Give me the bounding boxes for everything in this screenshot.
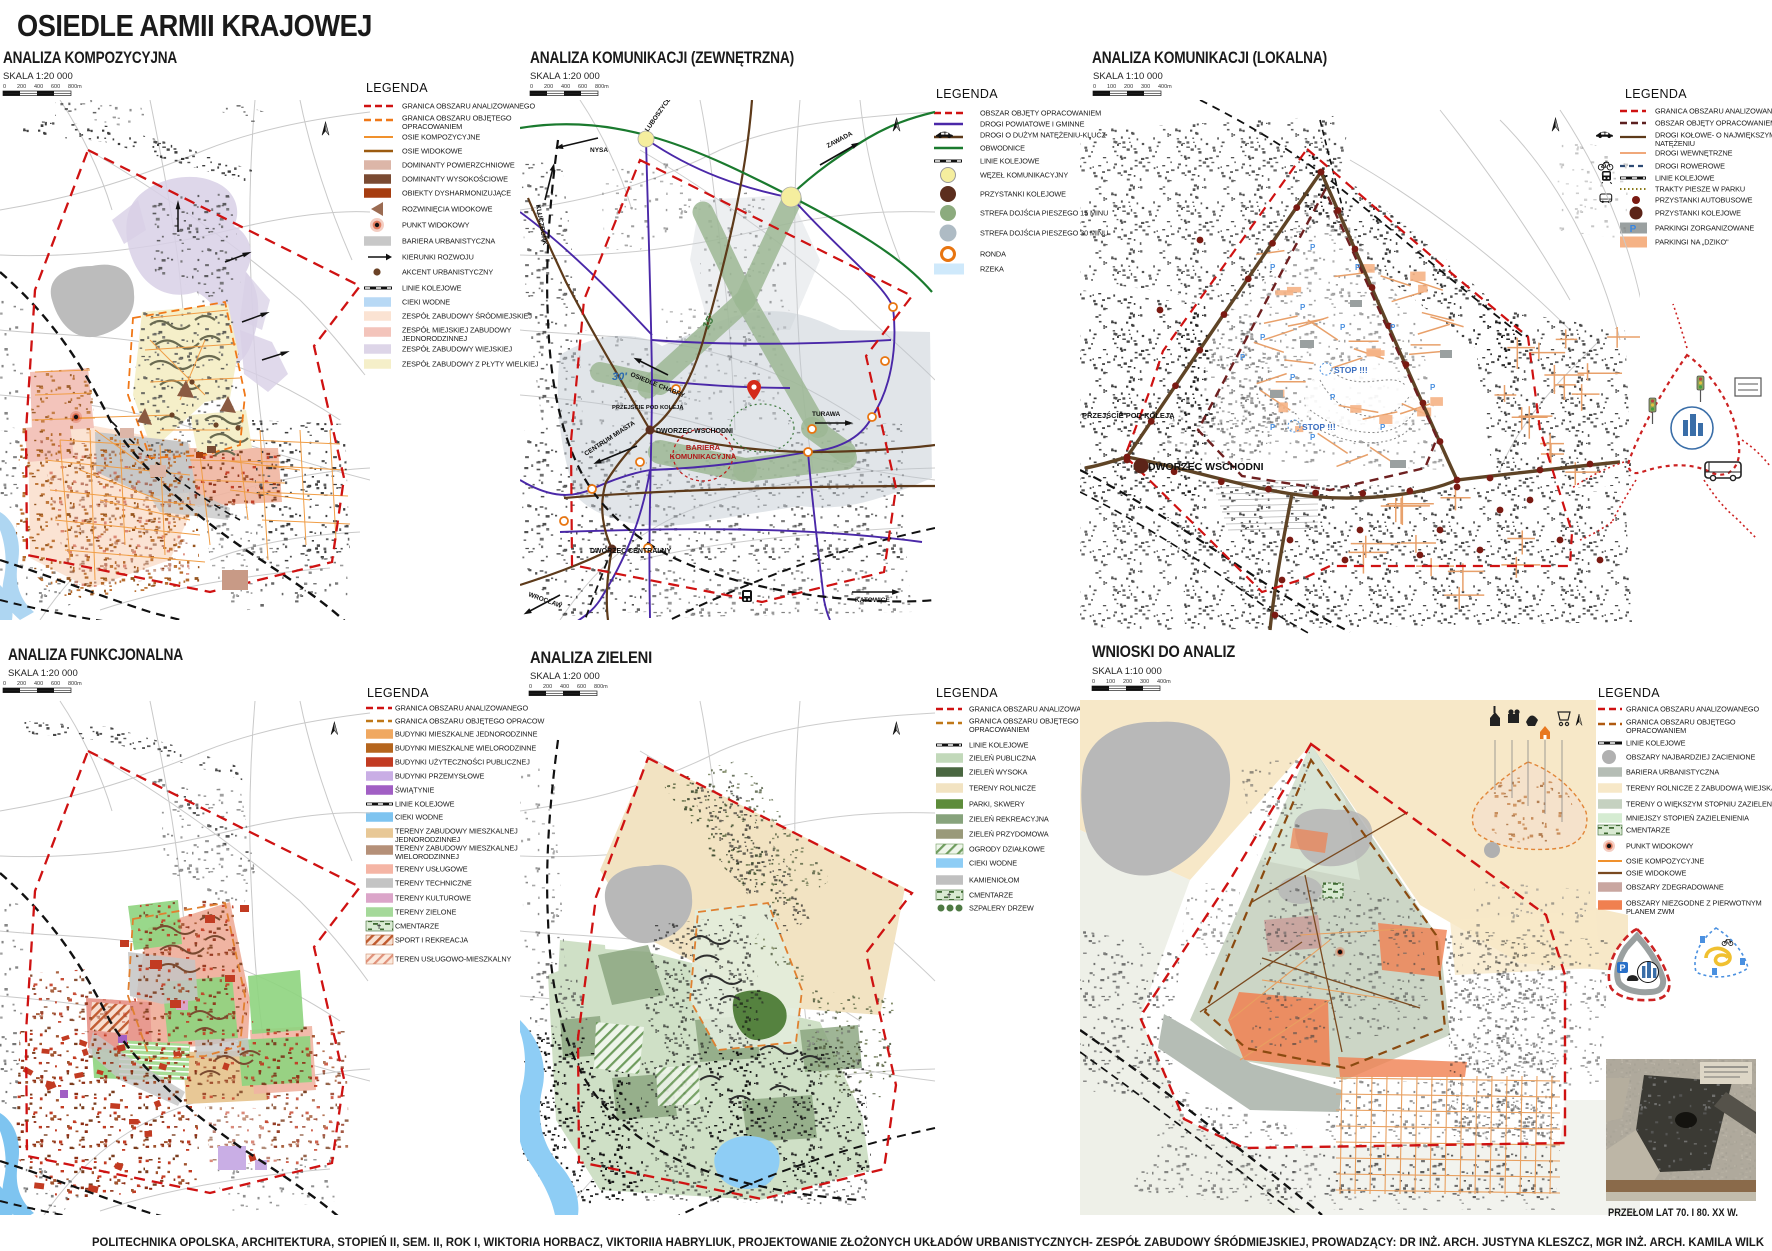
svg-text:P: P: [1310, 433, 1316, 442]
svg-text:TERENY ROLNICZE: TERENY ROLNICZE: [969, 784, 1036, 793]
svg-text:OBSZAR OBJĘTY OPRACOWANIEM: OBSZAR OBJĘTY OPRACOWANIEM: [980, 109, 1101, 118]
svg-text:OBSZARY NAJBARDZIEJ ZACIENIONE: OBSZARY NAJBARDZIEJ ZACIENIONE: [1626, 753, 1756, 762]
svg-text:BARIERA: BARIERA: [686, 443, 721, 452]
svg-text:300: 300: [1141, 84, 1150, 90]
svg-text:GRANICA OBSZARU OBJĘTEGO OPRAC: GRANICA OBSZARU OBJĘTEGO OPRACOW: [395, 717, 544, 726]
svg-text:CIEKI WODNE: CIEKI WODNE: [402, 298, 450, 307]
svg-text:OPRACOWANIEM: OPRACOWANIEM: [1626, 726, 1686, 735]
svg-text:PLANEM ZWM: PLANEM ZWM: [1626, 907, 1674, 916]
svg-text:OSIE KOMPOZYCYJNE: OSIE KOMPOZYCYJNE: [402, 133, 480, 142]
svg-text:0: 0: [3, 84, 6, 90]
svg-text:STOP !!!: STOP !!!: [1334, 365, 1368, 375]
svg-text:ANALIZA ZIELENI: ANALIZA ZIELENI: [530, 649, 652, 667]
svg-text:PARKI, SKWERY: PARKI, SKWERY: [969, 800, 1025, 809]
svg-text:400: 400: [34, 84, 43, 90]
svg-text:PRZEJŚCIE POD KOLEJĄ: PRZEJŚCIE POD KOLEJĄ: [1082, 411, 1175, 420]
svg-text:LEGENDA: LEGENDA: [936, 87, 998, 101]
svg-text:LINIE KOLEJOWE: LINIE KOLEJOWE: [1655, 174, 1715, 183]
svg-text:P: P: [1430, 383, 1436, 392]
svg-text:0: 0: [529, 684, 532, 690]
svg-text:OGRODY DZIAŁKOWE: OGRODY DZIAŁKOWE: [969, 845, 1045, 854]
svg-text:TRAKTY PIESZE W PARKU: TRAKTY PIESZE W PARKU: [1655, 185, 1745, 194]
svg-text:BUDYNKI MIESZKALNE WIELORODZIN: BUDYNKI MIESZKALNE WIELORODZINNE: [395, 744, 536, 753]
svg-text:✝: ✝: [946, 892, 952, 900]
svg-text:PARKINGI ZORGANIZOWANE: PARKINGI ZORGANIZOWANE: [1655, 224, 1754, 233]
svg-text:600: 600: [578, 84, 587, 90]
svg-text:200: 200: [1124, 84, 1133, 90]
svg-text:TERENY ROLNICZE Z ZABUDOWĄ WIE: TERENY ROLNICZE Z ZABUDOWĄ WIEJSKĄ: [1626, 784, 1772, 793]
svg-text:800m: 800m: [68, 681, 82, 687]
svg-text:ZESPÓŁ ZABUDOWY WIEJSKIEJ: ZESPÓŁ ZABUDOWY WIEJSKIEJ: [402, 345, 513, 354]
svg-text:ZIELEŃ PUBLICZNA: ZIELEŃ PUBLICZNA: [969, 754, 1036, 763]
svg-text:OSIE KOMPOZYCYJNE: OSIE KOMPOZYCYJNE: [1626, 857, 1704, 866]
svg-text:600: 600: [51, 681, 60, 687]
svg-text:DWORZEC WSCHODNI: DWORZEC WSCHODNI: [1148, 461, 1264, 473]
svg-text:400: 400: [561, 84, 570, 90]
svg-text:P: P: [1390, 323, 1396, 332]
svg-text:KOMUNIKACYJNA: KOMUNIKACYJNA: [670, 452, 737, 461]
svg-text:NATĘŻENIU: NATĘŻENIU: [1655, 139, 1695, 148]
svg-text:200: 200: [543, 684, 552, 690]
svg-text:100: 100: [1106, 679, 1115, 685]
svg-text:RONDA: RONDA: [980, 250, 1006, 259]
svg-text:PUNKT WIDOKOWY: PUNKT WIDOKOWY: [1626, 842, 1694, 851]
svg-text:P: P: [1300, 303, 1306, 312]
svg-text:400: 400: [560, 684, 569, 690]
svg-text:800m: 800m: [68, 84, 82, 90]
svg-text:BUDYNKI PRZEMYSŁOWE: BUDYNKI PRZEMYSŁOWE: [395, 772, 485, 781]
svg-text:LINIE KOLEJOWE: LINIE KOLEJOWE: [1626, 739, 1686, 748]
svg-text:P: P: [1290, 373, 1296, 382]
svg-text:0: 0: [1092, 679, 1095, 685]
svg-text:ZIELEŃ WYSOKA: ZIELEŃ WYSOKA: [969, 768, 1028, 777]
svg-text:P: P: [1630, 224, 1637, 235]
svg-text:PRZEŁOM LAT 70. I 80. XX W.: PRZEŁOM LAT 70. I 80. XX W.: [1608, 1207, 1738, 1219]
svg-text:TEREN USŁUGOWO-MIESZKALNY: TEREN USŁUGOWO-MIESZKALNY: [395, 955, 512, 964]
svg-text:ZESPÓŁ ZABUDOWY ŚRÓDMIEJSKIEJ: ZESPÓŁ ZABUDOWY ŚRÓDMIEJSKIEJ: [402, 312, 532, 321]
svg-text:PRZYSTANKI KOLEJOWE: PRZYSTANKI KOLEJOWE: [1655, 209, 1741, 218]
svg-text:OSIE WIDOKOWE: OSIE WIDOKOWE: [402, 147, 463, 156]
svg-text:SKALA 1:10 000: SKALA 1:10 000: [1092, 666, 1162, 677]
svg-text:ZIELEŃ PRZYDOMOWA: ZIELEŃ PRZYDOMOWA: [969, 830, 1049, 839]
svg-text:STOP !!!: STOP !!!: [1302, 422, 1336, 432]
svg-text:JEDNORODZINNEJ: JEDNORODZINNEJ: [402, 334, 468, 343]
svg-text:P: P: [1340, 323, 1346, 332]
svg-text:OPRACOWANIEM: OPRACOWANIEM: [969, 725, 1029, 734]
svg-text:OBSZARY ZDEGRADOWANE: OBSZARY ZDEGRADOWANE: [1626, 883, 1724, 892]
svg-text:ZESPÓŁ ZABUDOWY Z PŁYTY WIELKI: ZESPÓŁ ZABUDOWY Z PŁYTY WIELKIEJ: [402, 360, 539, 369]
svg-text:LINIE KOLEJOWE: LINIE KOLEJOWE: [395, 800, 455, 809]
svg-text:SKALA 1:20 000: SKALA 1:20 000: [3, 71, 73, 82]
svg-text:100: 100: [1107, 84, 1116, 90]
svg-text:SKALA 1:10 000: SKALA 1:10 000: [1093, 71, 1163, 82]
svg-text:300: 300: [1140, 679, 1149, 685]
svg-text:200: 200: [17, 84, 26, 90]
svg-text:OBIEKTY DYSHARMONIZUJĄCE: OBIEKTY DYSHARMONIZUJĄCE: [402, 189, 511, 198]
svg-text:200: 200: [544, 84, 553, 90]
svg-text:PARKINGI NA „DZIKO": PARKINGI NA „DZIKO": [1655, 238, 1729, 247]
svg-text:SKALA 1:20 000: SKALA 1:20 000: [530, 671, 600, 682]
svg-text:LEGENDA: LEGENDA: [1598, 686, 1660, 700]
svg-text:OBSZAR OBJĘTY OPRACOWANIEM: OBSZAR OBJĘTY OPRACOWANIEM: [1655, 119, 1772, 128]
svg-text:DWORZEC WSCHODNI: DWORZEC WSCHODNI: [656, 428, 733, 435]
svg-text:P: P: [1619, 963, 1625, 973]
svg-text:ROZWINIĘCIA WIDOKOWE: ROZWINIĘCIA WIDOKOWE: [402, 205, 493, 214]
svg-text:LEGENDA: LEGENDA: [366, 81, 428, 95]
svg-text:GRANICA OBSZARU ANALIZOWANEGO: GRANICA OBSZARU ANALIZOWANEGO: [1626, 705, 1759, 714]
svg-text:600: 600: [51, 84, 60, 90]
svg-text:LEGENDA: LEGENDA: [1625, 87, 1687, 101]
svg-text:AKCENT URBANISTYCZNY: AKCENT URBANISTYCZNY: [402, 268, 493, 277]
svg-text:DROGI WEWNĘTRZNE: DROGI WEWNĘTRZNE: [1655, 149, 1733, 158]
svg-text:P: P: [1310, 243, 1316, 252]
svg-text:DWORZEC CENTRALNY: DWORZEC CENTRALNY: [590, 548, 672, 555]
svg-text:400m: 400m: [1157, 679, 1171, 685]
svg-text:NYSA: NYSA: [590, 147, 608, 154]
svg-text:BARIERA URBANISTYCZNA: BARIERA URBANISTYCZNA: [402, 237, 495, 246]
svg-text:ANALIZA FUNKCJONALNA: ANALIZA FUNKCJONALNA: [8, 646, 183, 664]
svg-text:BARIERA URBANISTYCZNA: BARIERA URBANISTYCZNA: [1626, 768, 1719, 777]
svg-text:P: P: [1270, 263, 1276, 272]
svg-text:ANALIZA KOMUNIKACJI (ZEWNĘTRZN: ANALIZA KOMUNIKACJI (ZEWNĘTRZNA): [530, 49, 794, 67]
svg-text:KIERUNKI ROZWOJU: KIERUNKI ROZWOJU: [402, 253, 474, 262]
svg-text:SKALA 1:20 000: SKALA 1:20 000: [8, 668, 78, 679]
svg-text:DROGI POWIATOWE I GMINNE: DROGI POWIATOWE I GMINNE: [980, 120, 1085, 129]
svg-text:LINIE KOLEJOWE: LINIE KOLEJOWE: [969, 741, 1029, 750]
svg-text:0: 0: [1093, 84, 1096, 90]
svg-text:600: 600: [577, 684, 586, 690]
svg-text:30': 30': [612, 371, 627, 383]
svg-text:PUNKT WIDOKOWY: PUNKT WIDOKOWY: [402, 221, 470, 230]
svg-text:400m: 400m: [1158, 84, 1172, 90]
svg-text:BUDYNKI MIESZKALNE JEDNORODZIN: BUDYNKI MIESZKALNE JEDNORODZINNE: [395, 730, 538, 739]
svg-text:TERENY TECHNICZNE: TERENY TECHNICZNE: [395, 879, 472, 888]
svg-text:400: 400: [34, 681, 43, 687]
svg-text:TERENY O WIĘKSZYM STOPNIU ZAZI: TERENY O WIĘKSZYM STOPNIU ZAZIELENIENIA: [1626, 800, 1772, 809]
svg-text:SKALA 1:20 000: SKALA 1:20 000: [530, 71, 600, 82]
svg-text:ŚWIĄTYNIE: ŚWIĄTYNIE: [395, 786, 434, 795]
svg-text:WIELORODZINNEJ: WIELORODZINNEJ: [395, 852, 459, 861]
svg-text:800m: 800m: [594, 684, 608, 690]
svg-text:PRZEJŚCIE POD KOLEJĄ: PRZEJŚCIE POD KOLEJĄ: [612, 404, 684, 411]
svg-text:TERENY KULTUROWE: TERENY KULTUROWE: [395, 894, 471, 903]
svg-text:OSIEDLE ARMII KRAJOWEJ: OSIEDLE ARMII KRAJOWEJ: [17, 8, 372, 43]
svg-text:RZEKA: RZEKA: [980, 265, 1004, 274]
svg-text:CMENTARZE: CMENTARZE: [1626, 826, 1670, 835]
svg-text:800m: 800m: [595, 84, 609, 90]
svg-text:KATOWICE: KATOWICE: [855, 597, 890, 604]
svg-text:POLITECHNIKA OPOLSKA, ARCHITEK: POLITECHNIKA OPOLSKA, ARCHITEKTURA, STOP…: [92, 1236, 1765, 1249]
svg-text:SPORT I REKREACJA: SPORT I REKREACJA: [395, 936, 468, 945]
svg-text:LINIE KOLEJOWE: LINIE KOLEJOWE: [980, 157, 1040, 166]
svg-text:DOMINANTY POWIERZCHNIOWE: DOMINANTY POWIERZCHNIOWE: [402, 161, 515, 170]
svg-text:OPRACOWANIEM: OPRACOWANIEM: [402, 122, 462, 131]
svg-text:ZIELEŃ REKREACYJNA: ZIELEŃ REKREACYJNA: [969, 815, 1049, 824]
svg-text:P: P: [1260, 333, 1266, 342]
svg-text:DOMINANTY WYSOKOŚCIOWE: DOMINANTY WYSOKOŚCIOWE: [402, 175, 508, 184]
svg-text:TERENY USŁUGOWE: TERENY USŁUGOWE: [395, 865, 468, 874]
svg-text:P: P: [1270, 423, 1276, 432]
svg-text:0: 0: [3, 681, 6, 687]
svg-text:TERENY ZIELONE: TERENY ZIELONE: [395, 908, 457, 917]
svg-text:DROGI ROWEROWE: DROGI ROWEROWE: [1655, 162, 1725, 171]
svg-text:✝: ✝: [376, 923, 382, 931]
svg-text:CMENTARZE: CMENTARZE: [395, 922, 439, 931]
svg-text:ANALIZA KOMUNIKACJI (LOKALNA): ANALIZA KOMUNIKACJI (LOKALNA): [1092, 49, 1327, 67]
svg-text:OSIE WIDOKOWE: OSIE WIDOKOWE: [1626, 869, 1687, 878]
svg-text:CMENTARZE: CMENTARZE: [969, 891, 1013, 900]
svg-text:GRANICA OBSZARU ANALIZOWANEGO: GRANICA OBSZARU ANALIZOWANEGO: [1655, 107, 1772, 116]
svg-text:TURAWA: TURAWA: [812, 411, 840, 418]
svg-text:P: P: [1380, 423, 1386, 432]
svg-text:ANALIZA KOMPOZYCYJNA: ANALIZA KOMPOZYCYJNA: [3, 49, 177, 67]
svg-text:LEGENDA: LEGENDA: [936, 686, 998, 700]
svg-text:PRZYSTANKI KOLEJOWE: PRZYSTANKI KOLEJOWE: [980, 190, 1066, 199]
svg-text:BUDYNKI UŻYTECZNOŚCI PUBLICZNE: BUDYNKI UŻYTECZNOŚCI PUBLICZNEJ: [395, 758, 530, 767]
svg-text:200: 200: [1123, 679, 1132, 685]
svg-text:MNIEJSZY STOPIEŃ ZAZIELENIENIA: MNIEJSZY STOPIEŃ ZAZIELENIENIA: [1626, 814, 1749, 823]
svg-text:OBWODNICE: OBWODNICE: [980, 144, 1025, 153]
svg-text:LINIE KOLEJOWE: LINIE KOLEJOWE: [402, 284, 462, 293]
svg-text:WĘZEŁ KOMUNIKACYJNY: WĘZEŁ KOMUNIKACYJNY: [980, 171, 1068, 180]
svg-text:CIEKI WODNE: CIEKI WODNE: [395, 813, 443, 822]
svg-text:P: P: [1330, 393, 1336, 402]
svg-text:PRZYSTANKI AUTOBUSOWE: PRZYSTANKI AUTOBUSOWE: [1655, 196, 1753, 205]
svg-text:SZPALERY DRZEW: SZPALERY DRZEW: [969, 904, 1034, 913]
svg-text:200: 200: [17, 681, 26, 687]
svg-text:LEGENDA: LEGENDA: [367, 686, 429, 700]
svg-text:GRANICA OBSZARU ANALIZOWANEGO: GRANICA OBSZARU ANALIZOWANEGO: [395, 704, 528, 713]
svg-text:P: P: [1240, 353, 1246, 362]
svg-text:WNIOSKI DO ANALIZ: WNIOSKI DO ANALIZ: [1092, 643, 1235, 661]
svg-text:KAMIENIOŁOM: KAMIENIOŁOM: [969, 876, 1019, 885]
svg-text:P: P: [1355, 263, 1361, 272]
svg-text:0: 0: [530, 84, 533, 90]
svg-text:CIEKI WODNE: CIEKI WODNE: [969, 859, 1017, 868]
svg-text:GRANICA OBSZARU ANALIZOWANEGO: GRANICA OBSZARU ANALIZOWANEGO: [402, 102, 535, 111]
